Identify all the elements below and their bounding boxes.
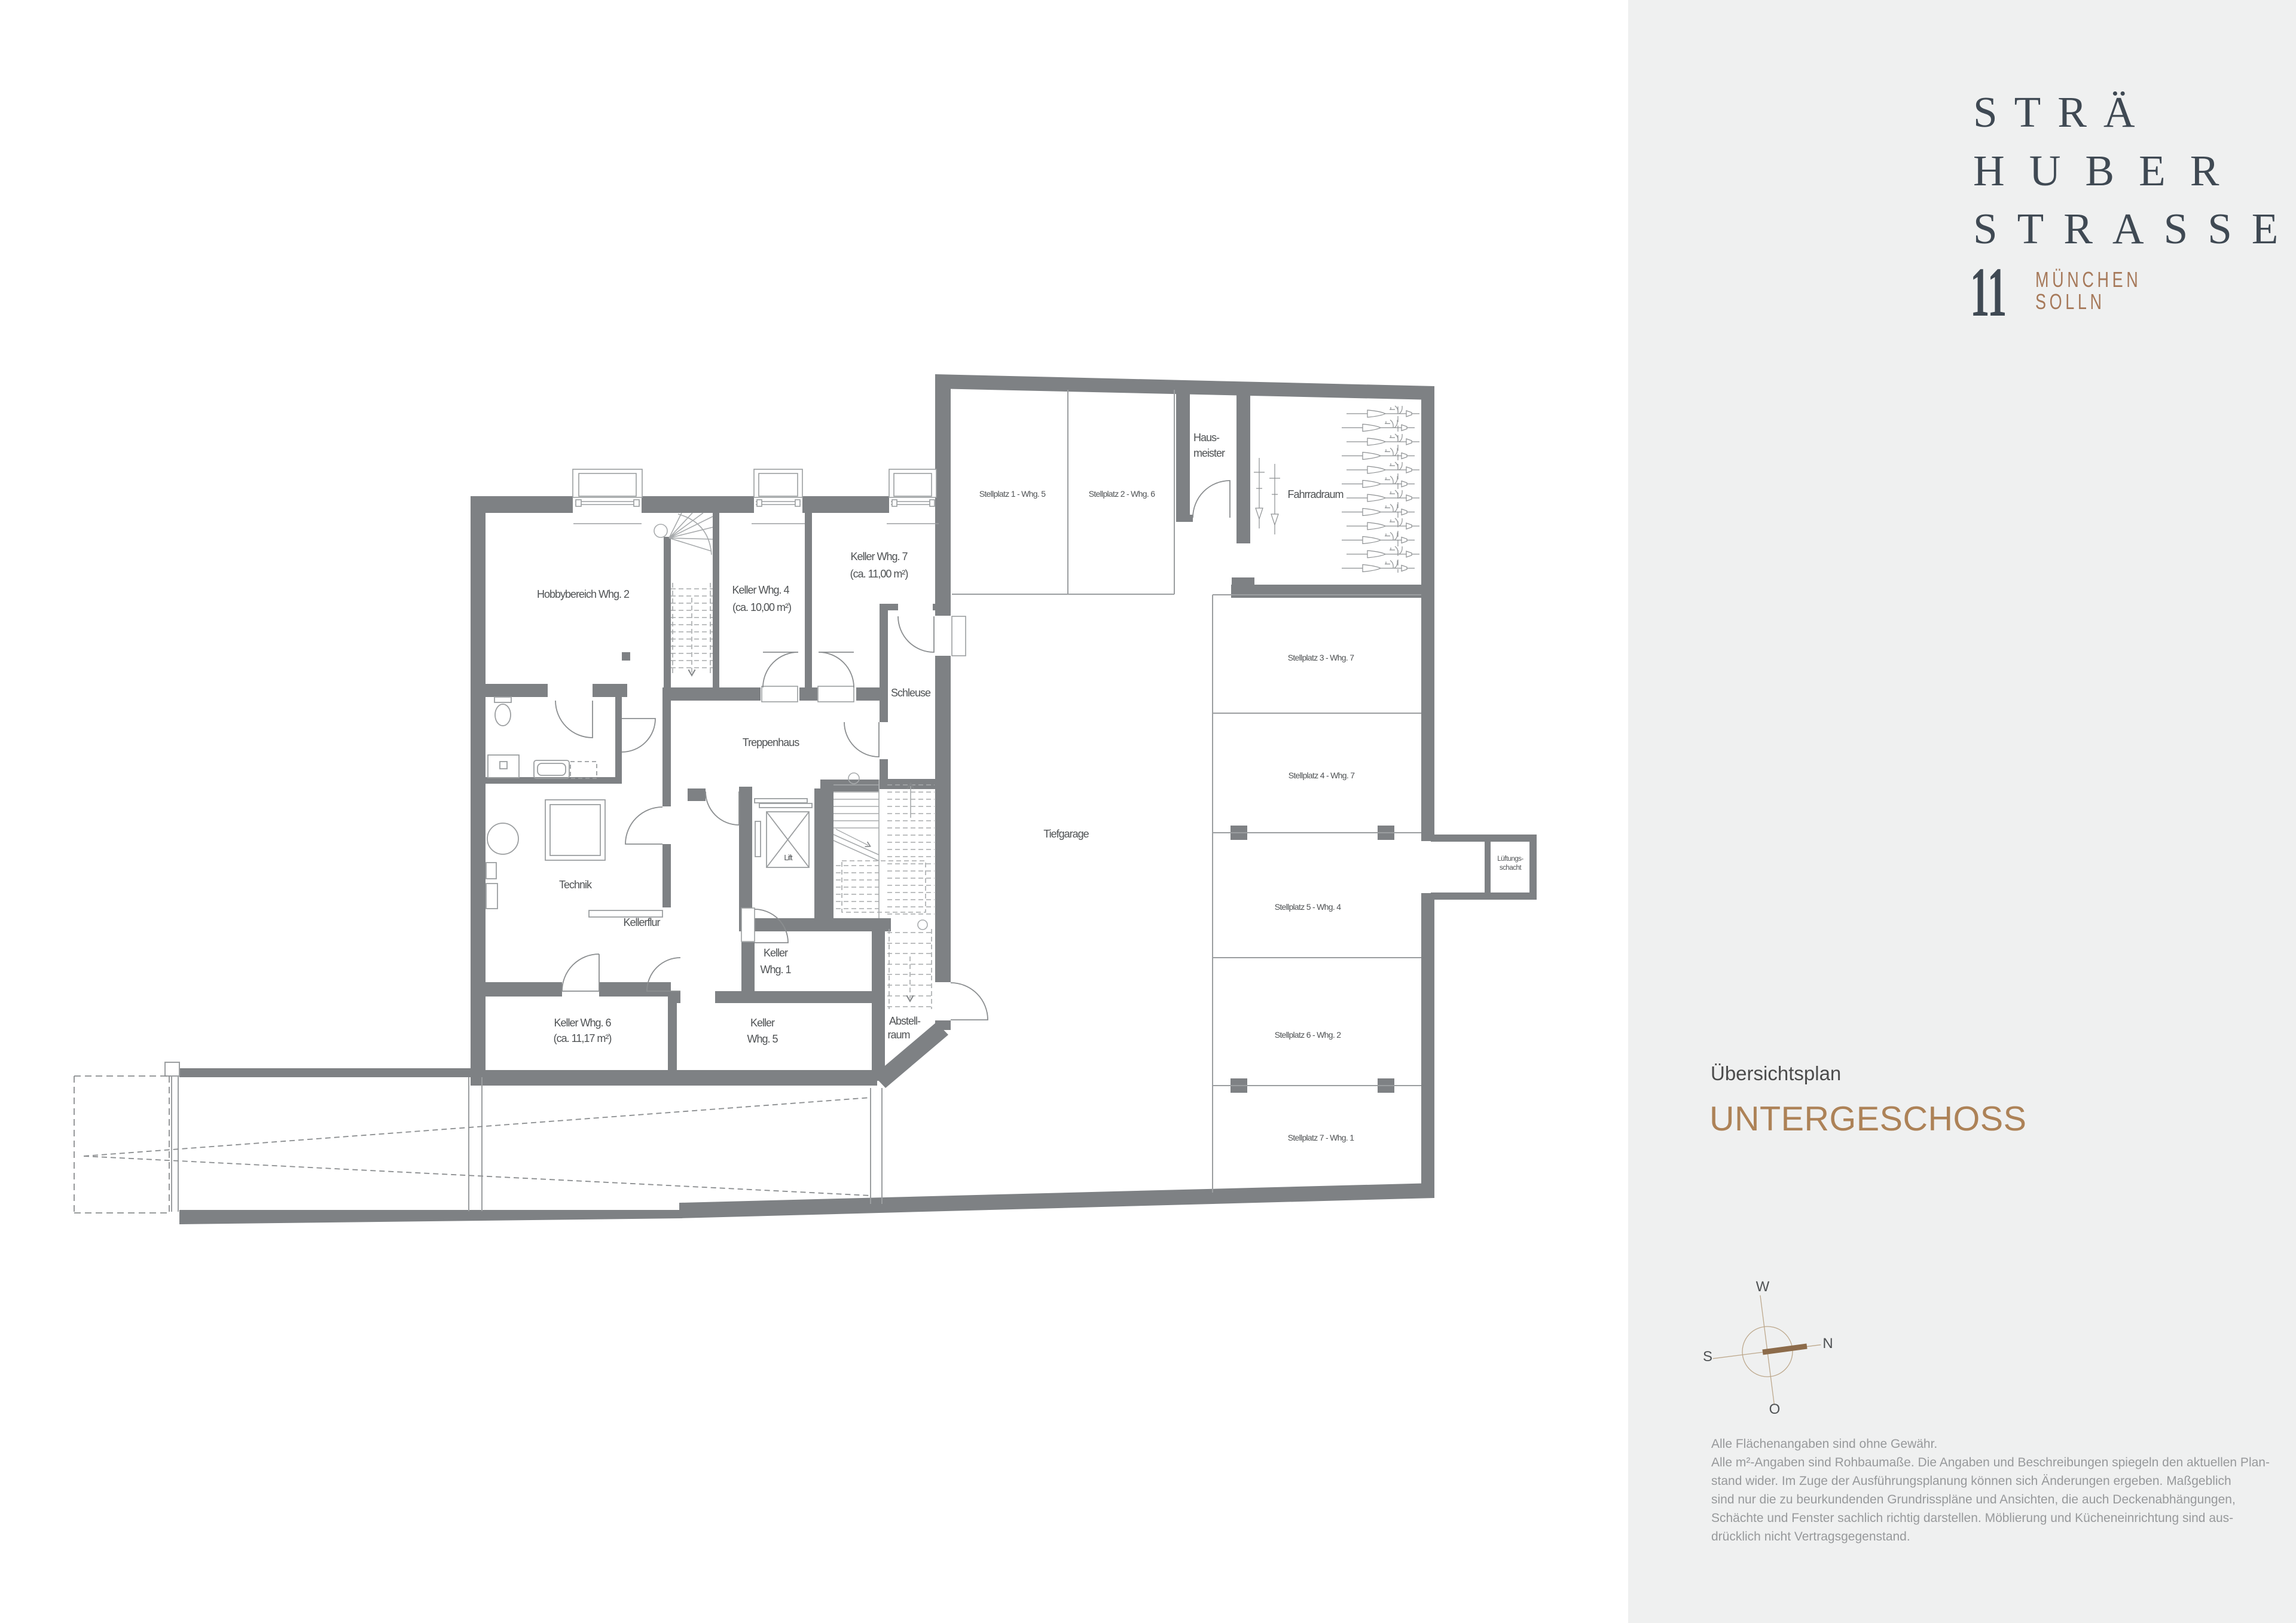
svg-text:Stellplatz 6 - Whg. 2: Stellplatz 6 - Whg. 2 — [1275, 1030, 1341, 1040]
svg-text:Abstell-: Abstell- — [889, 1015, 921, 1027]
svg-text:schacht: schacht — [1500, 864, 1522, 872]
svg-text:Treppenhaus: Treppenhaus — [743, 736, 799, 748]
svg-text:Haus-: Haus- — [1193, 432, 1220, 444]
svg-text:(ca. 11,00 m²): (ca. 11,00 m²) — [850, 568, 908, 580]
svg-text:Stellplatz 3 - Whg. 7: Stellplatz 3 - Whg. 7 — [1288, 653, 1354, 662]
svg-text:Keller: Keller — [764, 947, 788, 959]
svg-text:Whg. 1: Whg. 1 — [760, 964, 791, 976]
svg-text:Keller Whg. 6: Keller Whg. 6 — [554, 1017, 611, 1029]
svg-text:(ca. 10,00 m²): (ca. 10,00 m²) — [732, 601, 791, 613]
svg-text:Stellplatz 4 - Whg. 7: Stellplatz 4 - Whg. 7 — [1289, 771, 1355, 780]
svg-text:S: S — [1703, 1349, 1712, 1365]
svg-text:Whg. 5: Whg. 5 — [747, 1033, 778, 1045]
svg-text:Kellerflur: Kellerflur — [623, 916, 660, 928]
svg-text:Tiefgarage: Tiefgarage — [1043, 828, 1089, 840]
svg-text:Stellplatz 5 - Whg. 4: Stellplatz 5 - Whg. 4 — [1275, 902, 1341, 912]
svg-text:Stellplatz 1 - Whg. 5: Stellplatz 1 - Whg. 5 — [979, 489, 1046, 499]
svg-text:Keller Whg. 7: Keller Whg. 7 — [850, 551, 908, 563]
svg-text:Technik: Technik — [559, 879, 593, 891]
svg-text:raum: raum — [887, 1029, 909, 1041]
svg-text:Fahrradraum: Fahrradraum — [1287, 488, 1343, 500]
svg-text:Lift: Lift — [784, 853, 793, 862]
svg-text:Lüftungs-: Lüftungs- — [1497, 855, 1523, 863]
svg-text:Stellplatz 2 - Whg. 6: Stellplatz 2 - Whg. 6 — [1089, 489, 1155, 499]
svg-text:Hobbybereich Whg. 2: Hobbybereich Whg. 2 — [537, 588, 630, 600]
svg-text:Keller: Keller — [750, 1017, 775, 1029]
svg-text:Keller Whg. 4: Keller Whg. 4 — [732, 584, 789, 596]
svg-text:Stellplatz 7 - Whg. 1: Stellplatz 7 - Whg. 1 — [1288, 1133, 1354, 1142]
svg-text:O: O — [1769, 1401, 1781, 1417]
svg-text:N: N — [1822, 1335, 1833, 1352]
svg-text:(ca. 11,17 m²): (ca. 11,17 m²) — [554, 1032, 612, 1044]
svg-text:Schleuse: Schleuse — [891, 687, 931, 699]
svg-text:meister: meister — [1193, 447, 1225, 459]
svg-text:W: W — [1756, 1279, 1770, 1295]
